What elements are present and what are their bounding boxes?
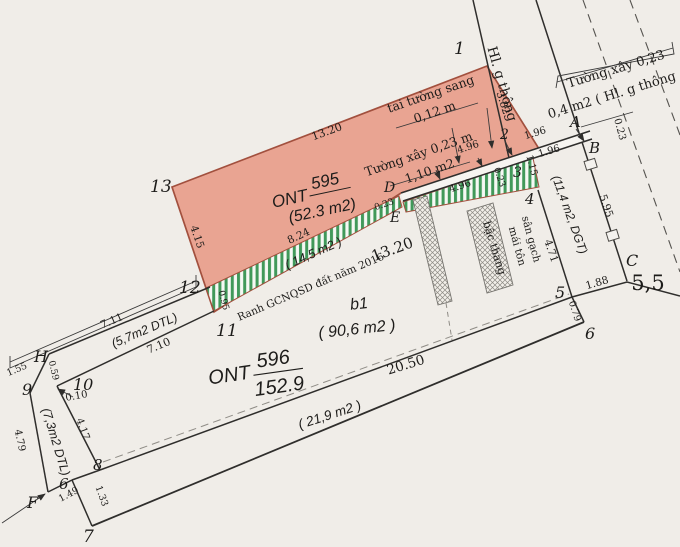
point-label-3: 3 — [513, 165, 522, 181]
point-label-8: 8 — [93, 456, 103, 474]
point-label-E: E — [389, 210, 400, 226]
point-label-13: 13 — [150, 177, 172, 197]
dim-55: 5,5 — [631, 271, 664, 295]
point-label-F: F — [26, 493, 39, 512]
point-label-7: 7 — [83, 527, 94, 547]
b1-label: b1 — [349, 295, 368, 314]
point-label-1: 1 — [454, 39, 465, 59]
point-label-4: 4 — [524, 190, 535, 208]
point-label-12: 12 — [179, 278, 201, 298]
point-label-11: 11 — [216, 321, 238, 341]
point-label-D: D — [383, 180, 395, 196]
point-label-6-right: 6 — [585, 324, 595, 343]
point-label-C: C — [626, 251, 638, 270]
point-label-B: B — [588, 139, 600, 157]
point-label-2: 2 — [499, 127, 509, 143]
point-label-9: 9 — [22, 380, 32, 399]
survey-drawing-page: 13 1 2 3 4 5 6 7 8 6 F 9 10 H 12 11 A B … — [0, 0, 680, 547]
point-label-5: 5 — [555, 283, 565, 302]
cadastral-map: 13 1 2 3 4 5 6 7 8 6 F 9 10 H 12 11 A B … — [0, 0, 680, 547]
